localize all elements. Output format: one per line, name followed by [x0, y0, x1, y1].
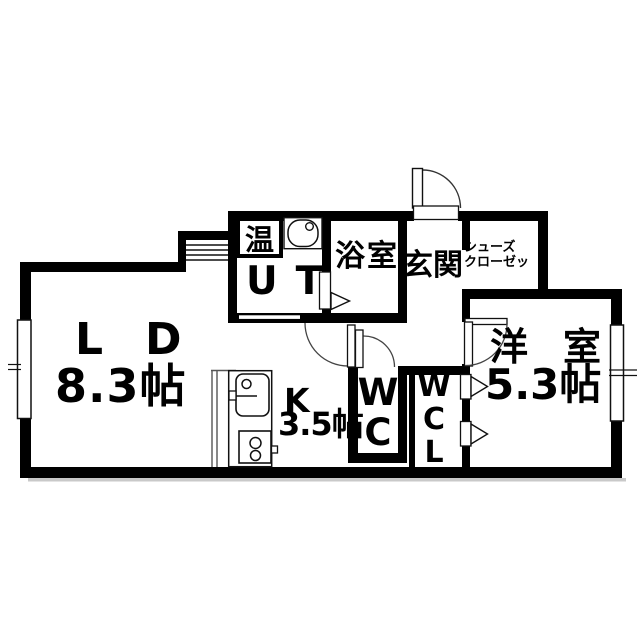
- wall-ut-bath-lower: [322, 308, 331, 323]
- label-wcl: W C L: [410, 370, 458, 469]
- floorplan-canvas: LD 8.3帖 K 3.5帖 UT 温 浴室 玄関 シューズ クローゼッ W C…: [0, 0, 639, 640]
- wcl-door-panel-top: [461, 375, 472, 400]
- stove-burner-top: [250, 438, 261, 449]
- label-utility: UT: [246, 262, 340, 301]
- wall-bottom: [20, 467, 622, 478]
- label-living-dining: LD: [75, 318, 224, 362]
- washbasin-icon: [288, 220, 318, 247]
- wall-western-left-mid2: [462, 399, 470, 421]
- washbasin-faucet-icon: [306, 223, 314, 231]
- stove-burner-bottom: [251, 451, 261, 461]
- wall-ld-top: [20, 262, 186, 272]
- label-shoes-closet: シューズ クローゼッ: [464, 240, 544, 270]
- wall-right-lower: [611, 420, 622, 478]
- label-wc-c: C: [356, 413, 400, 453]
- wc-door-jamb: [348, 325, 356, 367]
- label-wcl-l: L: [410, 436, 458, 469]
- entry-door: [413, 169, 461, 220]
- entry-door-arc: [423, 170, 461, 208]
- water-heater-box: 温: [236, 217, 283, 258]
- washbasin: [284, 218, 322, 249]
- label-kitchen-size: 3.5帖: [278, 408, 363, 440]
- wall-western-left-lower: [462, 446, 470, 467]
- label-entrance: 玄関: [403, 251, 463, 281]
- kitchen-counter: [229, 371, 278, 467]
- sink-icon: [236, 374, 269, 416]
- label-wcl-c: C: [410, 403, 458, 436]
- western-door-jamb: [465, 322, 473, 366]
- entry-door-sill: [414, 206, 459, 220]
- wall-shadow: [28, 478, 626, 482]
- label-shoes-closet-line2: クローゼッ: [464, 255, 544, 270]
- entry-door-leaf: [413, 169, 423, 209]
- wall-bath-bottom: [331, 313, 407, 323]
- label-wcl-w: W: [410, 370, 458, 403]
- sink-faucet-base: [229, 391, 236, 400]
- wcl-door-panel-bottom: [461, 422, 472, 447]
- hall-door-arc: [305, 323, 348, 366]
- label-wc-w: W: [356, 373, 400, 413]
- wc-door: [348, 325, 395, 368]
- label-shoes-closet-line1: シューズ: [464, 240, 544, 255]
- label-western-room-size: 5.3帖: [485, 364, 601, 406]
- wc-door-arc: [364, 336, 395, 367]
- ut-sliding-door: [239, 315, 301, 320]
- label-bathroom: 浴室: [335, 242, 399, 272]
- stairs-lines: [186, 245, 228, 260]
- sink-faucet-icon: [242, 380, 251, 389]
- wc-door-leaf: [356, 330, 364, 368]
- counter-handle: [272, 446, 278, 453]
- wall-wc-bottom: [348, 453, 407, 463]
- wcl-door-triangle-bottom: [471, 424, 488, 444]
- label-wc: W C: [356, 373, 400, 453]
- label-water-heater: 温: [245, 217, 274, 259]
- wall-top-right-of-entry: [458, 211, 546, 221]
- label-living-dining-size: 8.3帖: [55, 363, 187, 409]
